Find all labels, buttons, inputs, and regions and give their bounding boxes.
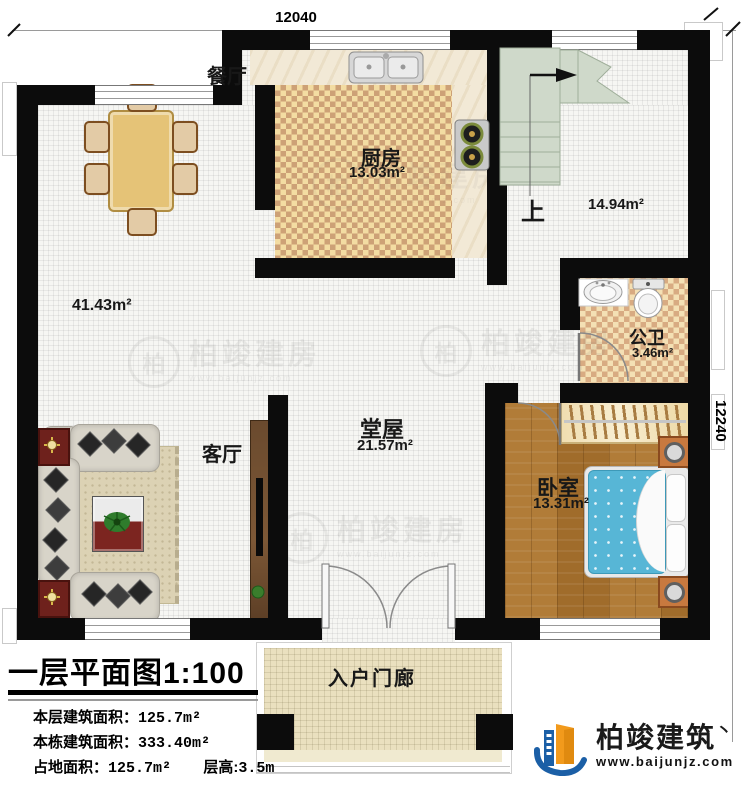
sofa-left bbox=[38, 458, 80, 586]
wall-bathroom-top bbox=[560, 258, 688, 278]
sofa-pillow bbox=[105, 583, 130, 608]
sofa-pillow bbox=[81, 581, 106, 606]
stat-floor-area: 本层建筑面积：125.7m² bbox=[33, 706, 201, 727]
room-area-kitchen: 13.03m² bbox=[349, 164, 405, 181]
wall-hall-living bbox=[268, 395, 288, 618]
floor-plan-canvas: 柏 柏竣建房www.baijunjz.com 柏 柏竣建房www.baijunj… bbox=[0, 0, 750, 796]
company-logo: 柏竣建筑丶 www.baijunjz.com bbox=[534, 716, 734, 776]
dining-chair bbox=[84, 121, 110, 153]
wall-exterior bbox=[455, 618, 540, 640]
end-table bbox=[38, 428, 70, 466]
sofa-pillow bbox=[77, 431, 102, 456]
dining-chair bbox=[127, 208, 157, 236]
plan-scale: 1:100 bbox=[163, 657, 245, 690]
floor-grid-entry bbox=[322, 618, 455, 642]
company-website: www.baijunjz.com bbox=[596, 755, 734, 768]
window bbox=[552, 30, 637, 50]
porch-step-band bbox=[264, 750, 502, 762]
wall-exterior bbox=[688, 50, 710, 640]
window-sill-marker bbox=[2, 82, 17, 156]
wall-bedroom-top bbox=[560, 383, 688, 403]
room-area-hall: 21.57m² bbox=[357, 437, 413, 454]
wall-bedroom-top bbox=[485, 383, 518, 403]
porch-step-line bbox=[256, 766, 510, 767]
title-underline bbox=[8, 690, 258, 695]
sofa-pillow bbox=[44, 555, 69, 580]
wall-kitchen-stairs bbox=[487, 30, 507, 285]
dining-chair bbox=[172, 121, 198, 153]
title-underline-thin bbox=[8, 699, 258, 701]
window bbox=[85, 618, 190, 640]
nightstand bbox=[658, 576, 690, 608]
wall-exterior bbox=[637, 30, 710, 50]
wall-kitchen-bottom bbox=[255, 258, 455, 278]
porch-column bbox=[476, 714, 513, 750]
nightstand bbox=[658, 436, 690, 468]
room-area-bathroom: 3.46m² bbox=[632, 345, 673, 360]
wall-exterior bbox=[190, 618, 322, 640]
watermark-logo-icon: 柏 bbox=[420, 325, 472, 377]
logo-tick: 丶 bbox=[716, 723, 734, 740]
window bbox=[540, 618, 660, 640]
dimension-depth-label: 12240 bbox=[712, 400, 729, 442]
wall-exterior bbox=[242, 30, 310, 50]
watermark: 柏 柏竣建房www.baijunjz.com bbox=[312, 158, 505, 210]
sofa-pillow bbox=[125, 432, 150, 457]
stat-building-area: 本栋建筑面积：333.40m² bbox=[33, 731, 210, 752]
dining-chair bbox=[84, 163, 110, 195]
tv-screen bbox=[256, 478, 263, 556]
window-sill-marker bbox=[711, 290, 725, 370]
watermark: 柏 柏竣建房www.baijunjz.com bbox=[276, 512, 469, 564]
nightstand-lamp bbox=[664, 442, 685, 463]
window bbox=[95, 85, 213, 105]
wall-exterior bbox=[660, 618, 710, 640]
watermark: 柏 柏竣建房www.baijunjz.com bbox=[420, 325, 613, 377]
wall-kitchen-left bbox=[255, 85, 275, 210]
sofa-pillow bbox=[43, 467, 68, 492]
wall-exterior bbox=[17, 618, 85, 640]
dining-chair bbox=[172, 163, 198, 195]
sofa-pillow bbox=[101, 428, 126, 453]
porch-column bbox=[257, 714, 294, 750]
wall-bedroom-left bbox=[485, 403, 505, 618]
room-label-living: 客厅 bbox=[202, 438, 242, 467]
sofa-pillow bbox=[42, 527, 67, 552]
room-label-porch: 入户门廊 bbox=[328, 662, 416, 691]
coffee-table bbox=[92, 496, 144, 552]
end-table bbox=[38, 580, 70, 618]
open-area-label: 41.43m² bbox=[72, 297, 132, 315]
wall-exterior bbox=[17, 85, 38, 640]
stat-floor-height: 层高: bbox=[203, 759, 238, 776]
wardrobe-rail bbox=[564, 420, 686, 423]
wall-bathroom-left bbox=[560, 278, 580, 330]
bed-pillow bbox=[666, 474, 686, 522]
sofa-bottom bbox=[70, 572, 160, 622]
sofa-pillow bbox=[45, 497, 70, 522]
nightstand-lamp bbox=[664, 582, 685, 603]
dining-table bbox=[108, 110, 174, 212]
company-name: 柏竣建筑丶 bbox=[596, 724, 734, 752]
room-area-bedroom: 13.31m² bbox=[533, 495, 589, 512]
bed-pillow bbox=[666, 524, 686, 572]
watermark: 柏 柏竣建房www.baijunjz.com bbox=[128, 336, 321, 388]
stat-land-area: 占地面积：125.7m² 层高:3.5m bbox=[33, 756, 274, 777]
dimension-line-right bbox=[732, 30, 733, 742]
window-sill-marker bbox=[2, 608, 17, 644]
watermark-logo-icon: 柏 bbox=[128, 336, 180, 388]
porch-step-line bbox=[256, 772, 510, 773]
sofa-top bbox=[70, 424, 160, 472]
plan-title-text: 一层平面图 bbox=[8, 657, 163, 690]
sofa-pillow bbox=[127, 579, 152, 604]
company-logo-icon bbox=[534, 716, 588, 776]
room-label-dining: 餐厅 bbox=[207, 60, 247, 89]
dimension-width-label: 12040 bbox=[260, 9, 332, 26]
window bbox=[310, 30, 450, 50]
room-area-stairhall: 14.94m² bbox=[588, 196, 644, 213]
plan-title: 一层平面图1:100 bbox=[8, 648, 245, 692]
kitchen-counter-top bbox=[250, 50, 487, 85]
stair-up-label: 上 bbox=[521, 192, 545, 227]
